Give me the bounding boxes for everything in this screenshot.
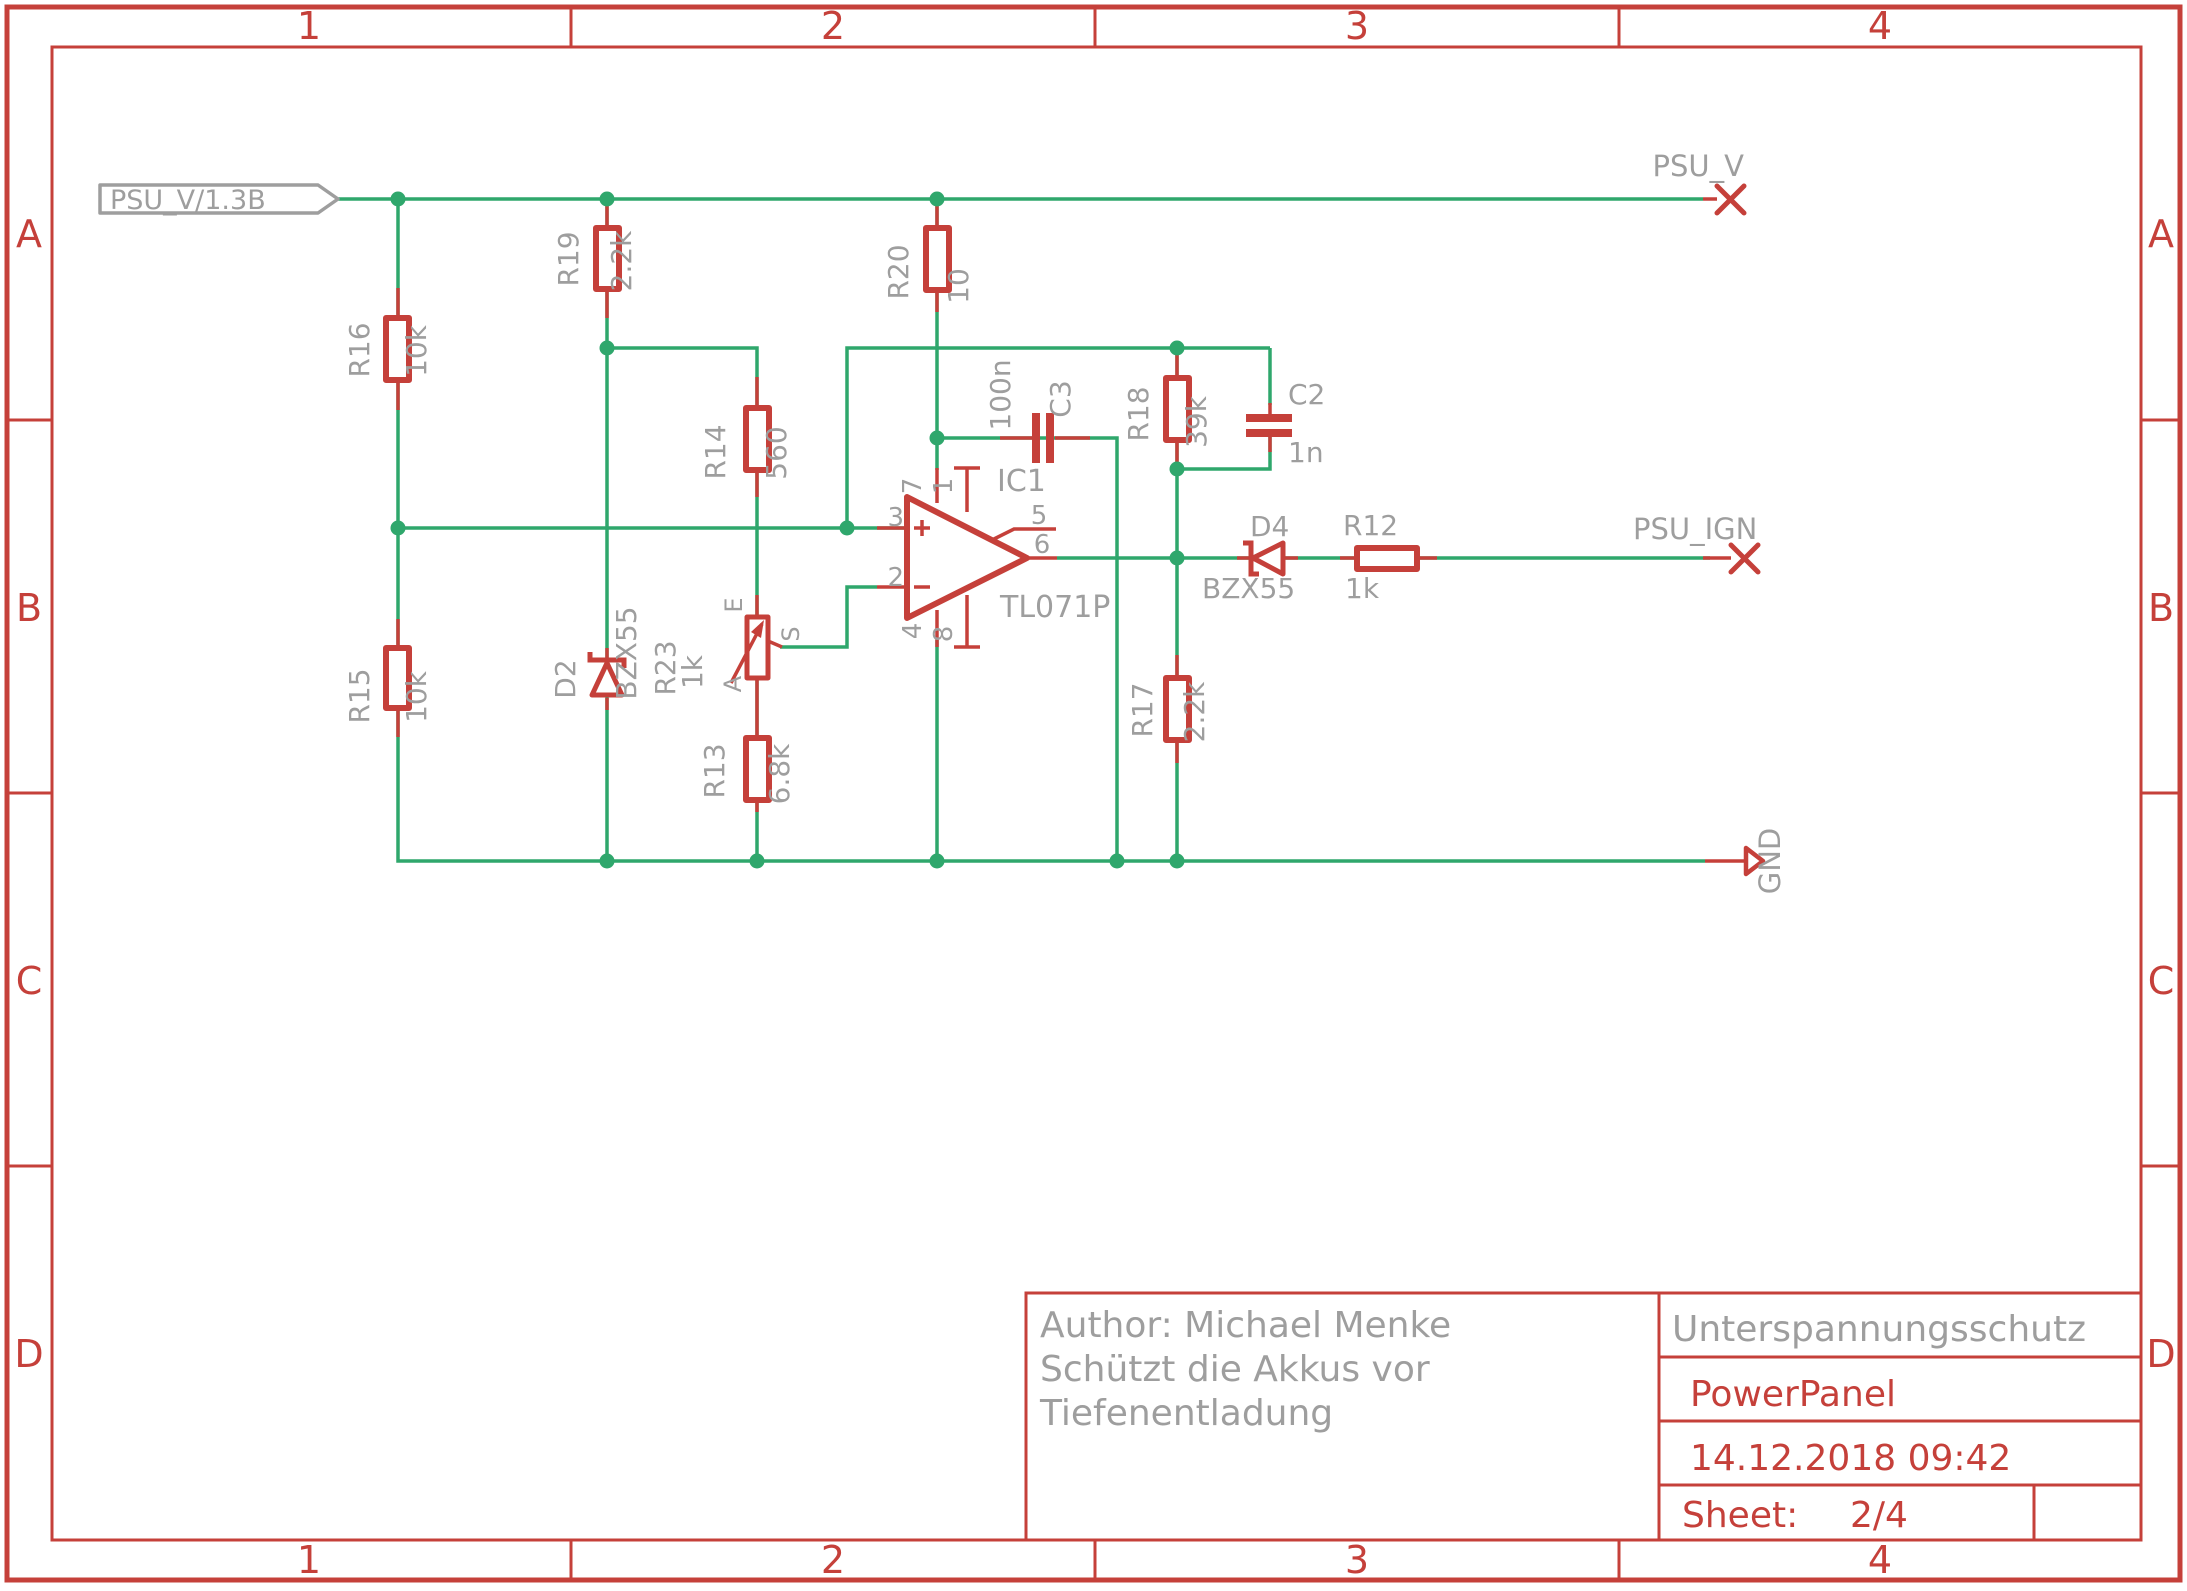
diode-d4-triangle xyxy=(1253,543,1283,574)
resistor-r15: R15 10k xyxy=(343,619,433,737)
resistor-r19: R19 2.2k xyxy=(552,201,638,318)
net-label-psu-v: PSU_V xyxy=(1653,149,1745,183)
resistor-r18-value: 39k xyxy=(1180,395,1213,448)
diode-d4-value: BZX55 xyxy=(1202,572,1295,605)
resistor-r17: R17 2.2k xyxy=(1126,655,1211,763)
frame-col-2-top: 2 xyxy=(821,4,845,48)
opamp-value: TL071P xyxy=(999,590,1110,625)
potentiometer-r23-value: 1k xyxy=(676,654,709,689)
resistor-r20: R20 10 xyxy=(882,201,975,312)
frame-row-d-left: D xyxy=(14,1332,43,1376)
net-flag-label: PSU_V/1.3B xyxy=(110,185,266,216)
net-gnd: GND xyxy=(1705,828,1787,895)
resistor-r12-name: R12 xyxy=(1343,509,1398,542)
resistor-r14-name: R14 xyxy=(699,424,732,479)
frame-row-b-left: B xyxy=(16,586,42,630)
frame-col-1-top: 1 xyxy=(297,4,321,48)
net-flag-psu-v-1-3b: PSU_V/1.3B xyxy=(100,185,338,216)
frame-row-b-right: B xyxy=(2148,586,2174,630)
opamp-pin8-number: 8 xyxy=(929,626,959,643)
resistor-r12-value: 1k xyxy=(1345,572,1380,605)
opamp-pin4-number: 4 xyxy=(898,623,928,640)
zener-diode-d2: D2 BZX55 xyxy=(549,606,643,710)
resistor-r13: R13 6.8k xyxy=(698,678,796,812)
resistor-r18-name: R18 xyxy=(1122,386,1155,441)
title-date: 14.12.2018 09:42 xyxy=(1690,1438,2011,1479)
resistor-r12-body xyxy=(1357,548,1417,569)
resistor-r16: R16 10k xyxy=(343,288,433,410)
resistor-r16-name: R16 xyxy=(343,322,376,377)
capacitor-c3-name: C3 xyxy=(1044,380,1077,417)
frame-col-1-bottom: 1 xyxy=(297,1538,321,1582)
resistor-r14: R14 560 xyxy=(699,377,793,497)
frame-col-3-bottom: 3 xyxy=(1345,1538,1369,1582)
title-sheet-label: Sheet: xyxy=(1682,1495,1798,1536)
frame-col-4-top: 4 xyxy=(1868,4,1892,48)
schematic-canvas: 1 2 3 4 1 2 3 4 A B C D A B C D xyxy=(0,0,2187,1587)
opamp-pin7-number: 7 xyxy=(898,478,928,495)
capacitor-c2: C2 1n xyxy=(1246,378,1325,469)
net-psu-ign: PSU_IGN xyxy=(1633,512,1758,572)
resistor-r17-name: R17 xyxy=(1126,682,1159,737)
diode-d2-value: BZX55 xyxy=(610,606,643,699)
frame-row-c-right: C xyxy=(2148,959,2175,1003)
net-psu-v: PSU_V xyxy=(1653,149,1745,213)
title-board-name: PowerPanel xyxy=(1690,1374,1896,1415)
resistor-r15-name: R15 xyxy=(343,668,376,723)
resistor-r20-name: R20 xyxy=(882,244,915,299)
capacitor-c2-value: 1n xyxy=(1288,436,1324,469)
opamp-pin2-number: 2 xyxy=(887,563,904,593)
schematic-sheet: 1 2 3 4 1 2 3 4 A B C D A B C D xyxy=(0,0,2187,1587)
diode-d2-name: D2 xyxy=(549,659,582,698)
capacitor-c2-plate-top xyxy=(1246,414,1292,422)
net-label-gnd: GND xyxy=(1753,828,1787,895)
frame-col-2-bottom: 2 xyxy=(821,1538,845,1582)
opamp-refdes: IC1 xyxy=(997,464,1046,499)
net-x-icon-psu-v xyxy=(1717,186,1744,213)
capacitor-c3-plate-right xyxy=(1046,413,1054,463)
opamp-ic1: 3 2 7 1 4 8 5 6 IC1 TL071P xyxy=(877,464,1110,647)
net-label-psu-ign: PSU_IGN xyxy=(1633,512,1757,546)
resistor-r12: R12 1k xyxy=(1340,509,1437,605)
resistor-r14-value: 560 xyxy=(760,426,793,479)
frame-row-a-left: A xyxy=(16,212,42,256)
frame-row-a-right: A xyxy=(2148,212,2174,256)
title-author-line2: Schützt die Akkus vor xyxy=(1040,1349,1430,1390)
resistor-r16-value: 10k xyxy=(400,324,433,377)
capacitor-c3-plate-left xyxy=(1032,413,1040,463)
capacitor-c3: 100n C3 xyxy=(984,359,1090,463)
opamp-pin3-number: 3 xyxy=(887,503,904,533)
potentiometer-pin-e: E xyxy=(720,597,748,612)
net-x-icon-psu-ign xyxy=(1731,545,1758,572)
potentiometer-pin-s: S xyxy=(777,626,805,641)
title-block: Author: Michael Menke Schützt die Akkus … xyxy=(1026,1293,2141,1540)
resistor-r19-value: 2.2k xyxy=(605,230,638,292)
potentiometer-r23: R23 1k E S A xyxy=(649,595,805,696)
resistor-r20-value: 10 xyxy=(942,268,975,304)
opamp-pin1-number: 1 xyxy=(929,478,959,495)
title-author-line3: Tiefenentladung xyxy=(1039,1393,1333,1434)
capacitor-c2-plate-bottom xyxy=(1246,429,1292,437)
frame-col-3-top: 3 xyxy=(1345,4,1369,48)
diode-d4-name: D4 xyxy=(1250,510,1289,543)
resistor-r18: R18 39k xyxy=(1122,350,1213,467)
frame-col-4-bottom: 4 xyxy=(1868,1538,1892,1582)
capacitor-c3-value: 100n xyxy=(984,359,1017,430)
opamp-pin5-number: 5 xyxy=(1031,501,1048,531)
resistor-r13-name: R13 xyxy=(698,743,731,798)
potentiometer-pin-a: A xyxy=(719,675,747,692)
resistor-r19-name: R19 xyxy=(552,231,585,286)
title-sheet-value: 2/4 xyxy=(1850,1495,1908,1536)
frame-row-d-right: D xyxy=(2146,1332,2175,1376)
resistor-r15-value: 10k xyxy=(400,670,433,723)
title-project: Unterspannungsschutz xyxy=(1672,1309,2086,1350)
opamp-pin6-number: 6 xyxy=(1034,530,1051,560)
title-author-line1: Author: Michael Menke xyxy=(1040,1305,1451,1346)
resistor-r17-value: 2.2k xyxy=(1178,681,1211,743)
capacitor-c2-name: C2 xyxy=(1288,378,1325,411)
resistor-r13-value: 6.8k xyxy=(763,743,796,805)
frame-row-c-left: C xyxy=(16,959,43,1003)
